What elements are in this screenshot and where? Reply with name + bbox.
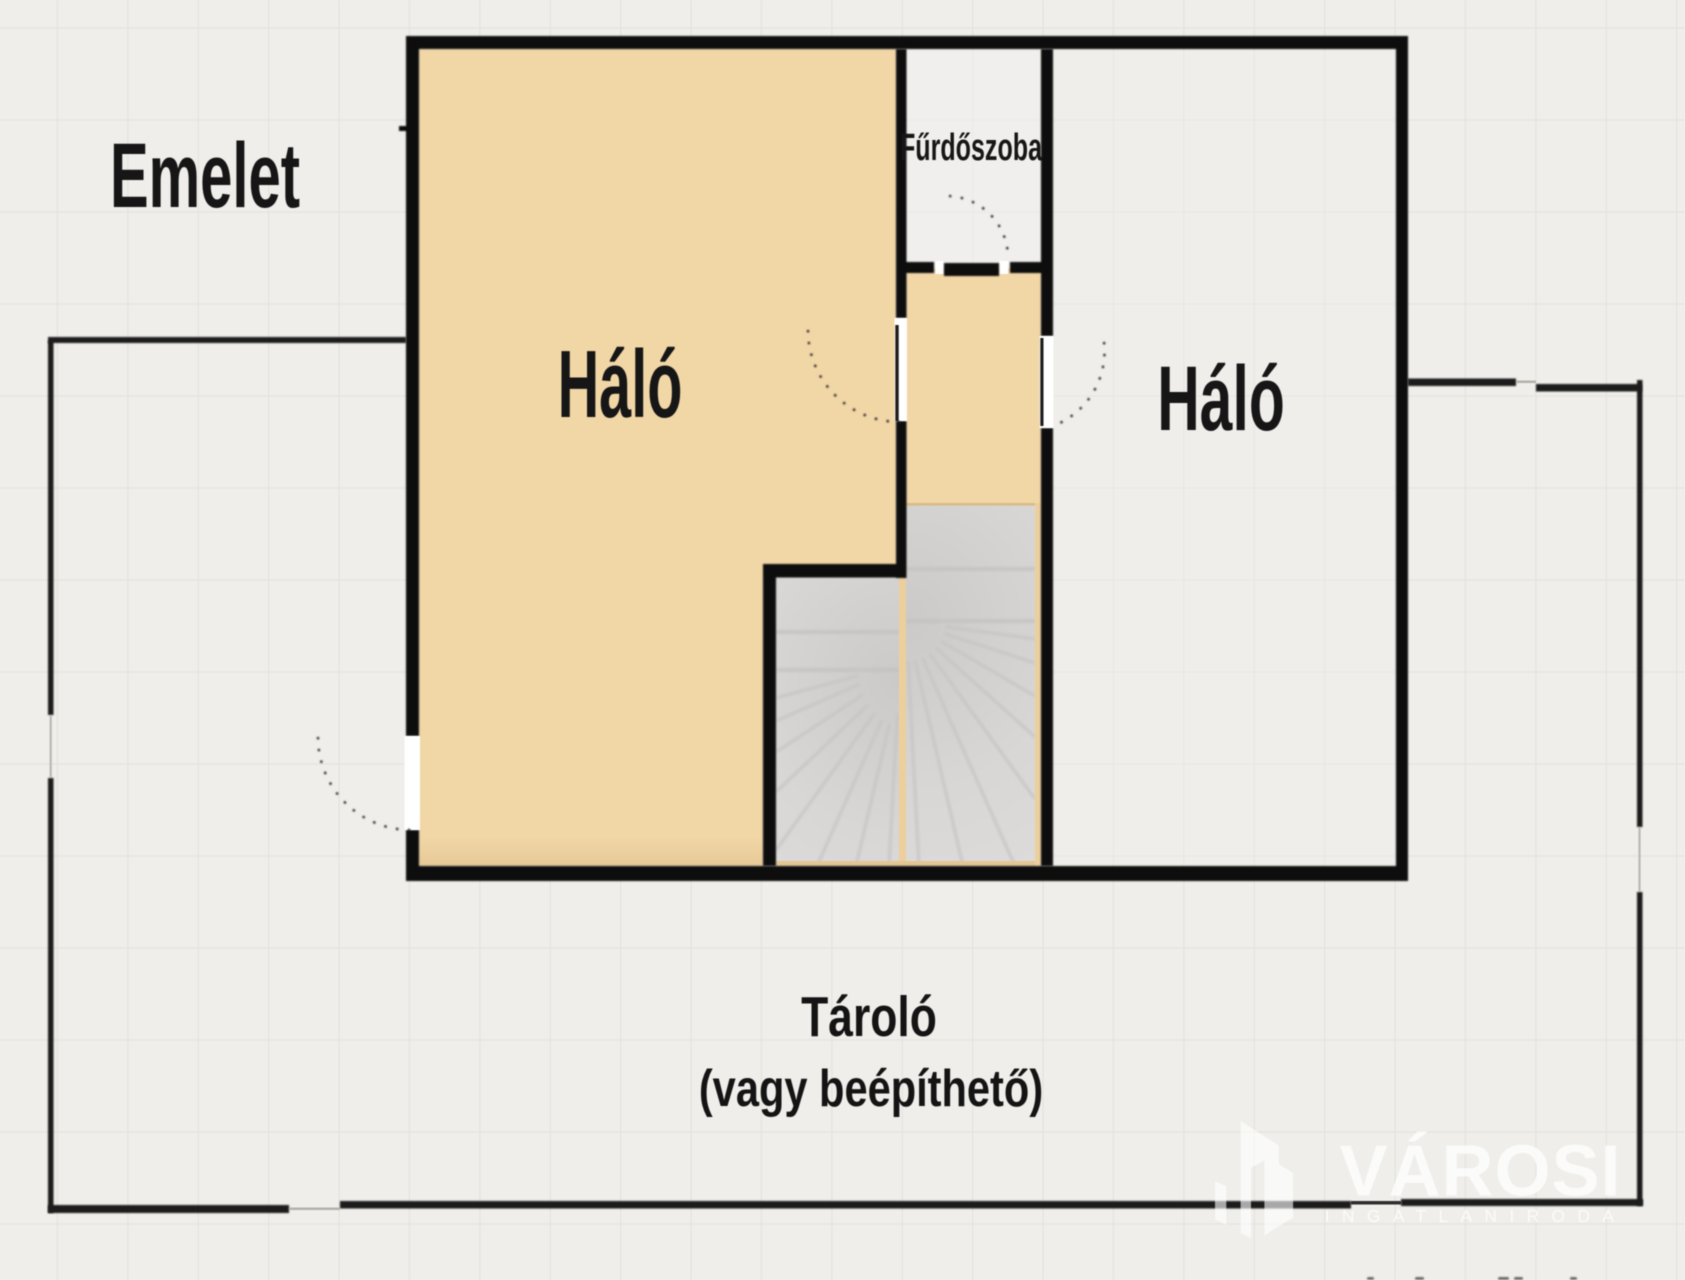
svg-text:Háló: Háló xyxy=(558,330,683,438)
svg-text:Tároló: Tároló xyxy=(801,985,937,1049)
svg-text:Emelet: Emelet xyxy=(110,124,300,227)
svg-text:Fűrdőszoba: Fűrdőszoba xyxy=(900,126,1043,168)
svg-text:INGATLANIRODA: INGATLANIRODA xyxy=(1325,1206,1627,1226)
svg-text:Háló: Háló xyxy=(1157,348,1285,450)
svg-text:(vagy beépíthető): (vagy beépíthető) xyxy=(699,1059,1043,1118)
svg-text:VÁROSI: VÁROSI xyxy=(1339,1131,1621,1211)
